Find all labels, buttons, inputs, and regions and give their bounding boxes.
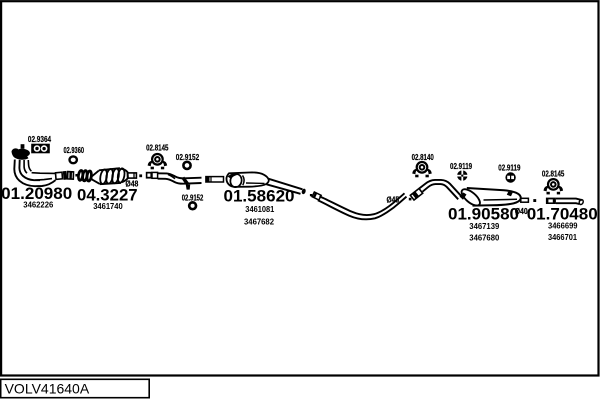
svg-text:02.9360: 02.9360 <box>64 145 85 155</box>
svg-text:02.8145: 02.8145 <box>542 168 565 178</box>
svg-text:02.9364: 02.9364 <box>28 134 51 144</box>
svg-text:01.58620: 01.58620 <box>224 187 295 206</box>
svg-text:02.9152: 02.9152 <box>176 152 200 162</box>
svg-text:02.9119: 02.9119 <box>498 163 520 173</box>
svg-text:3462226: 3462226 <box>23 201 54 210</box>
svg-text:3466699: 3466699 <box>548 222 578 231</box>
svg-text:3461081: 3461081 <box>245 205 275 214</box>
svg-text:01.70480: 01.70480 <box>527 204 598 223</box>
svg-text:3467680: 3467680 <box>469 234 500 243</box>
svg-text:3461740: 3461740 <box>93 202 123 211</box>
svg-text:3466701: 3466701 <box>548 233 578 242</box>
svg-text:02.9119: 02.9119 <box>450 161 472 171</box>
svg-text:Ø45: Ø45 <box>387 194 400 204</box>
svg-text:VOLV41640A: VOLV41640A <box>5 381 90 397</box>
svg-text:02.9152: 02.9152 <box>182 193 204 203</box>
svg-text:3467682: 3467682 <box>244 217 275 226</box>
svg-text:02.8140: 02.8140 <box>412 152 434 162</box>
svg-text:02.8145: 02.8145 <box>146 143 169 153</box>
svg-text:3467139: 3467139 <box>469 222 500 231</box>
svg-text:01.90580: 01.90580 <box>448 204 519 223</box>
